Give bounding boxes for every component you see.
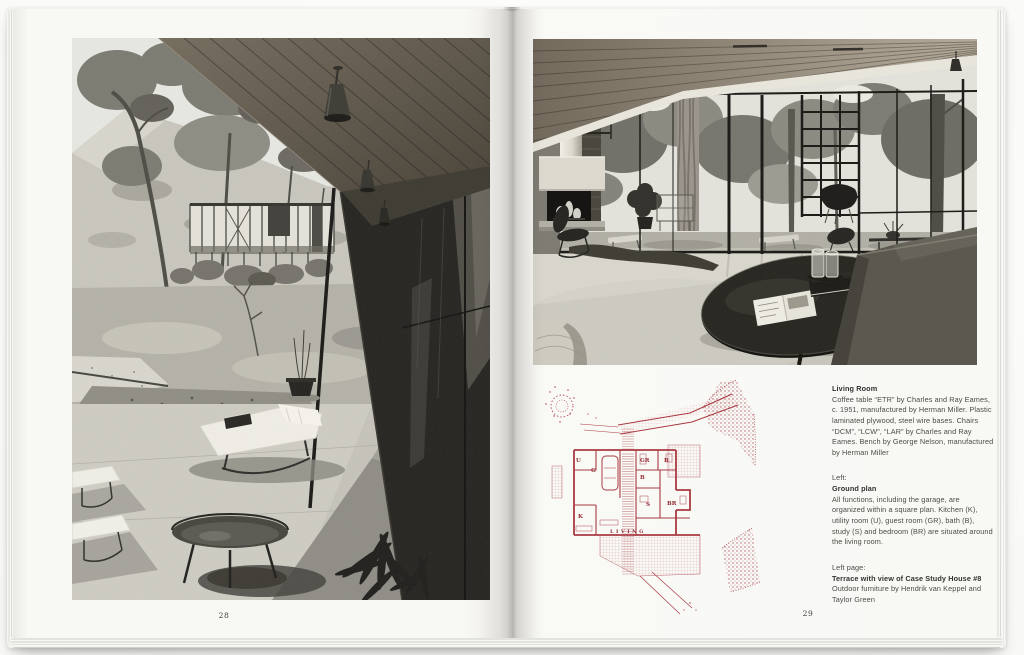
- photo-grain: [533, 39, 977, 365]
- plan-label-utility: U: [576, 458, 581, 464]
- plan-label-living: LIVING: [610, 529, 646, 535]
- plan-label-kitchen: K: [578, 514, 584, 520]
- page-stack-right-edge: [995, 10, 1006, 643]
- caption-heading: Terrace with view of Case Study House #8: [832, 574, 994, 585]
- page-stack-bottom-edge: [11, 637, 1002, 648]
- caption-body: Outdoor furniture by Hendrik van Keppel …: [832, 584, 994, 605]
- plan-label-guest-room: GR: [640, 458, 650, 464]
- caption-column: Living Room Coffee table “ETR” by Charle…: [832, 384, 994, 621]
- open-book: 28: [7, 7, 1006, 648]
- ground-plan-drawing: U G GR B B S BR K LIVING: [540, 378, 820, 618]
- caption-heading: Ground plan: [832, 484, 994, 495]
- plan-label-study: S: [646, 502, 650, 508]
- plan-label-bath-top: B: [664, 458, 669, 464]
- left-page-photo-terrace: [72, 38, 490, 600]
- plan-label-bath-mid: B: [640, 475, 645, 481]
- caption-ground-plan: Left: Ground plan All functions, includi…: [832, 473, 994, 547]
- caption-body: All functions, including the garage, are…: [832, 495, 994, 548]
- spine-top-notch: [501, 7, 523, 14]
- caption-intro: Left:: [832, 473, 994, 484]
- caption-left-page-ref: Left page: Terrace with view of Case Stu…: [832, 563, 994, 606]
- right-page-number: 29: [788, 609, 828, 618]
- plan-trees-right: [703, 380, 760, 592]
- left-page-number: 28: [204, 611, 244, 620]
- right-page-photo-living-room: [533, 39, 977, 365]
- caption-heading: Living Room: [832, 384, 994, 395]
- plan-label-garage: G: [591, 468, 596, 474]
- left-page: 28: [14, 9, 512, 638]
- right-page: U G GR B B S BR K LIVING Living Room Cof…: [512, 9, 996, 638]
- photo-grain: [72, 38, 490, 600]
- caption-intro: Left page:: [832, 563, 994, 574]
- plan-car: [602, 456, 618, 490]
- plan-label-bedroom: BR: [667, 501, 677, 507]
- caption-body: Coffee table “ETR” by Charles and Ray Ea…: [832, 395, 994, 459]
- plan-trees-top-left: [545, 386, 596, 422]
- caption-living-room: Living Room Coffee table “ETR” by Charle…: [832, 384, 994, 458]
- book-spread-photo: 28: [0, 0, 1024, 655]
